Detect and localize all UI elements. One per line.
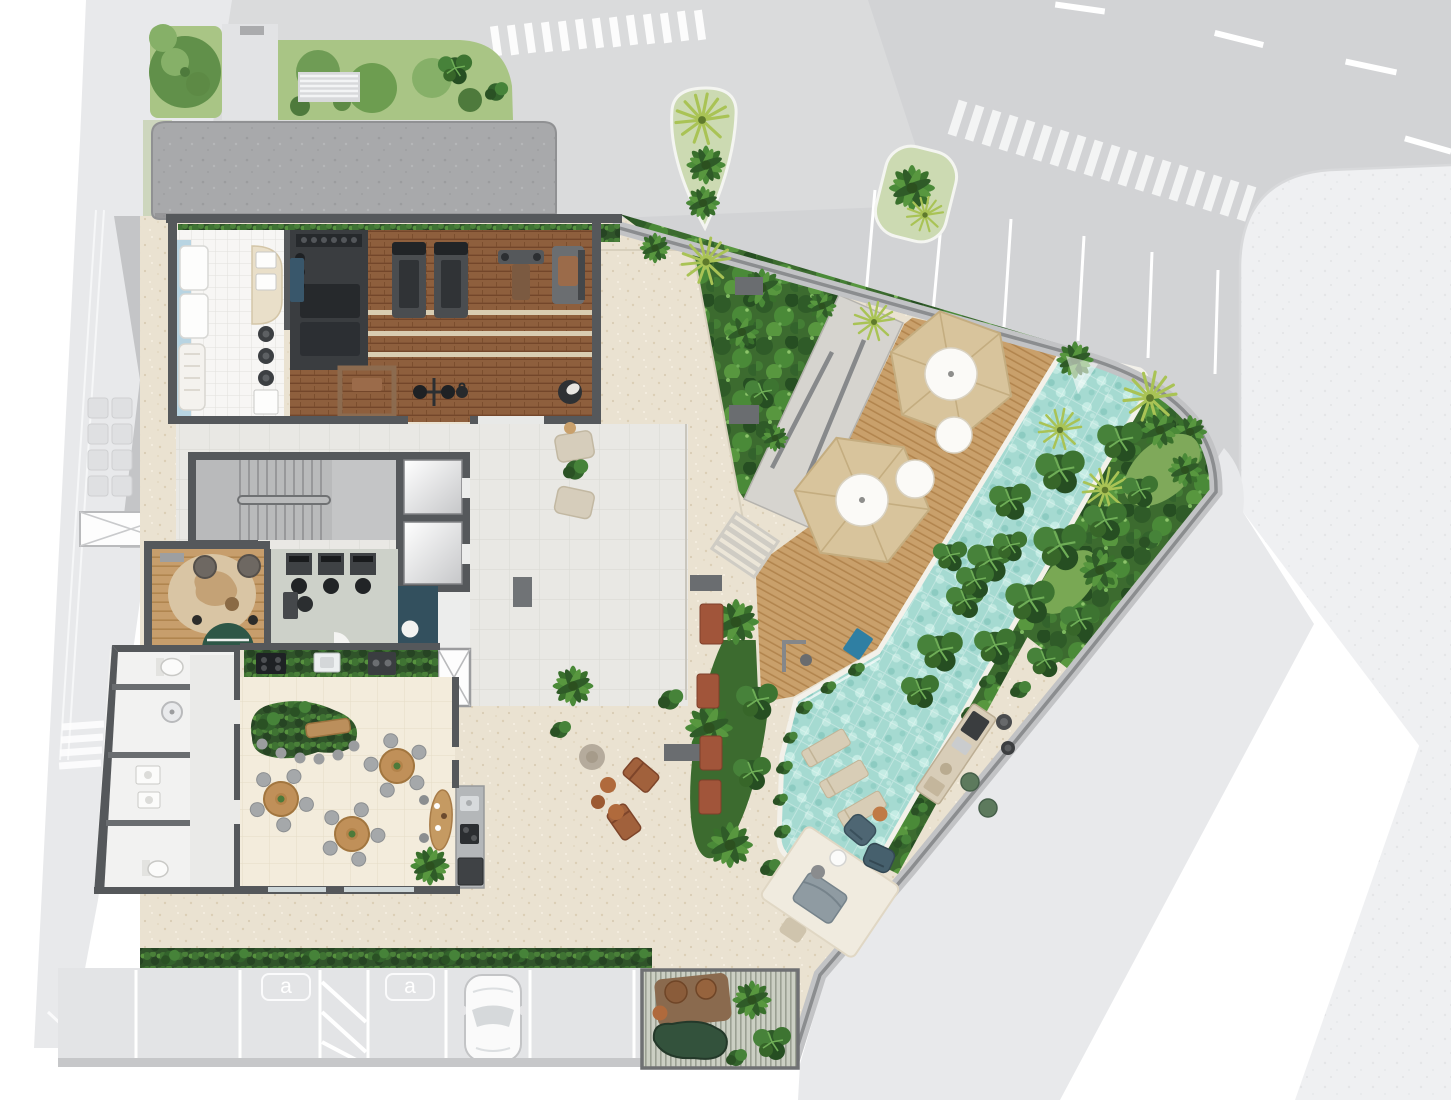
svg-text:a: a [404,975,416,998]
svg-text:a: a [280,975,292,998]
